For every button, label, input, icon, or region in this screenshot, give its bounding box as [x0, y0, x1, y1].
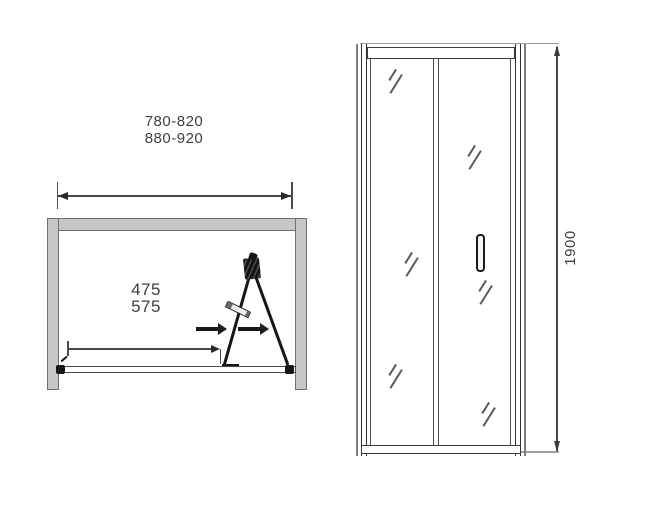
- clearance-dimension-line: [68, 348, 214, 350]
- door-handle-front-icon: [476, 234, 485, 272]
- frame-jamb-right: [515, 44, 522, 456]
- frame-sill: [361, 445, 522, 454]
- glass-mark-icon: [382, 362, 408, 388]
- glass-mark-icon: [475, 400, 501, 426]
- outer-wall-line-left: [356, 44, 358, 456]
- glass-mark-icon: [461, 143, 487, 169]
- bottom-track: [58, 366, 296, 373]
- fold-clearance-label-1: 475: [114, 281, 178, 298]
- height-dim-extension-top: [360, 43, 559, 45]
- outer-wall-line-right: [524, 44, 526, 456]
- plan-width-range-label-2: 880-920: [112, 130, 236, 147]
- open-direction-arrow-2-icon: [260, 323, 269, 335]
- door-foot-guide: [222, 364, 239, 367]
- frame-header: [367, 47, 515, 59]
- arrow-right-icon: [281, 192, 291, 200]
- glass-mark-icon: [398, 250, 424, 276]
- folded-door-leaf-right: [251, 266, 290, 366]
- open-direction-arrow-1-shaft: [196, 327, 218, 330]
- track-end-bracket-right: [285, 365, 294, 374]
- clearance-dim-drop-line: [220, 349, 222, 364]
- fold-clearance-label-2: 575: [114, 298, 178, 315]
- frame-top-profile: [47, 218, 307, 231]
- height-dimension-line: [556, 47, 558, 451]
- track-end-bracket-left: [56, 365, 65, 374]
- panel-right-edge-line: [510, 59, 511, 446]
- width-dimension-line: [57, 195, 292, 197]
- plan-width-range-label-1: 780-820: [112, 113, 236, 130]
- wall-right: [295, 218, 307, 390]
- open-direction-arrow-1-icon: [218, 323, 227, 335]
- arrow-up-icon: [554, 45, 560, 56]
- arrow-down-icon: [554, 441, 560, 452]
- meeting-stile-line-a: [433, 59, 434, 446]
- frame-jamb-left: [361, 44, 368, 456]
- arrow-left-icon: [58, 192, 68, 200]
- glass-mark-icon: [382, 67, 408, 93]
- glass-mark-icon: [472, 278, 498, 304]
- panel-left-edge-line: [370, 59, 371, 446]
- technical-drawing-canvas: 780-820 880-920 475 575: [0, 0, 650, 520]
- open-direction-arrow-2-shaft: [238, 327, 260, 330]
- fold-hinge-icon: [243, 257, 261, 280]
- height-label: 1900: [562, 219, 580, 277]
- meeting-stile-line-b: [438, 59, 439, 446]
- track-bracket-left-pin: [60, 356, 67, 363]
